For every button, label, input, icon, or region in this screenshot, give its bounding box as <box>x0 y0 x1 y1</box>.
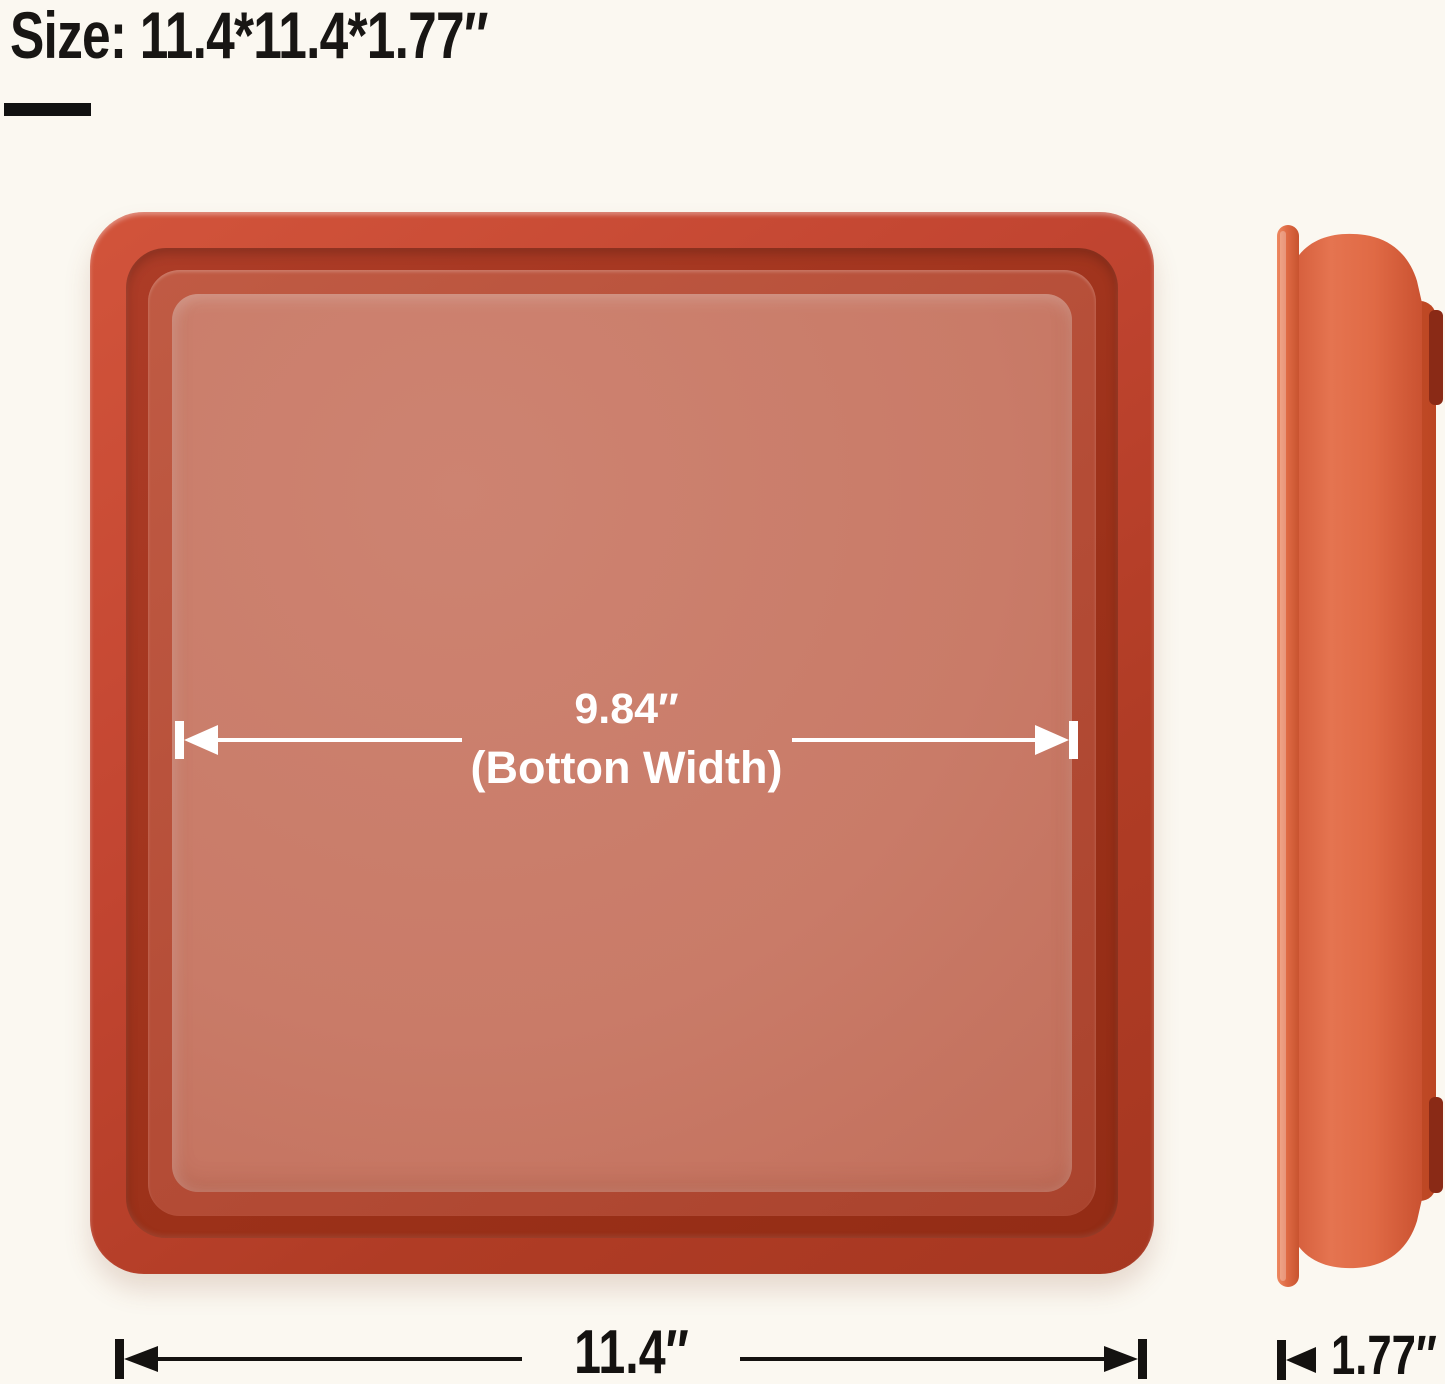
arrow-left-icon <box>184 725 218 755</box>
dimension-endcap-right <box>1069 721 1078 759</box>
saucer-body-profile <box>1295 234 1422 1268</box>
saucer-rim-lip <box>1277 225 1299 1287</box>
inner-width-label: (Botton Width) <box>471 745 783 790</box>
page-title: Size: 11.4*11.4*1.77″ <box>10 0 622 71</box>
arrow-right-icon <box>1104 1346 1138 1372</box>
inner-width-dimension: 9.84″ (Botton Width) <box>175 721 1078 759</box>
product-dimension-diagram: Size: 11.4*11.4*1.77″ 9.84″ (Botton Widt… <box>0 0 1445 1384</box>
thickness-value: 1.77″ <box>1316 1327 1445 1383</box>
dimension-endcap-left <box>1277 1340 1286 1380</box>
dimension-endcap-right <box>1138 1339 1147 1379</box>
arrow-left-icon <box>124 1346 158 1372</box>
saucer-side-view <box>1275 215 1445 1287</box>
dimension-line-left <box>218 738 462 742</box>
title-underline <box>4 103 91 116</box>
dimension-endcap-left <box>115 1339 124 1379</box>
dimension-line-right <box>740 1357 1104 1361</box>
overall-width-dimension: 11.4″ <box>115 1339 1147 1379</box>
inner-width-value: 9.84″ <box>574 688 678 731</box>
inner-width-text-block: 9.84″ (Botton Width) <box>462 721 792 759</box>
page-title-text: Size: 11.4*11.4*1.77″ <box>10 0 488 71</box>
arrow-right-icon <box>1035 725 1069 755</box>
thickness-dimension: 1.77″ <box>1277 1340 1433 1380</box>
saucer-foot-notch-top <box>1429 310 1443 405</box>
saucer-foot-notch-bottom <box>1429 1097 1443 1193</box>
dimension-endcap-left <box>175 721 184 759</box>
dimension-line-right <box>792 738 1036 742</box>
overall-width-value: 11.4″ <box>522 1322 741 1384</box>
dimension-line-left <box>158 1357 522 1361</box>
arrow-left-icon <box>1286 1347 1316 1373</box>
